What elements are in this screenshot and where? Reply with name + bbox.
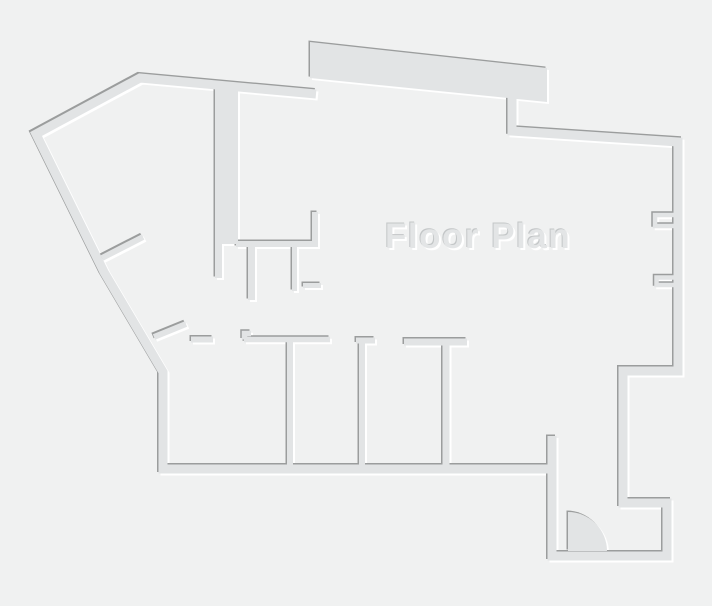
- floor-plan-stage: Floor Plan: [0, 0, 712, 606]
- title-layer: Floor Plan: [385, 217, 571, 256]
- floor-plan-title: Floor Plan: [385, 217, 571, 256]
- floor-plan-canvas: Floor Plan: [0, 0, 712, 606]
